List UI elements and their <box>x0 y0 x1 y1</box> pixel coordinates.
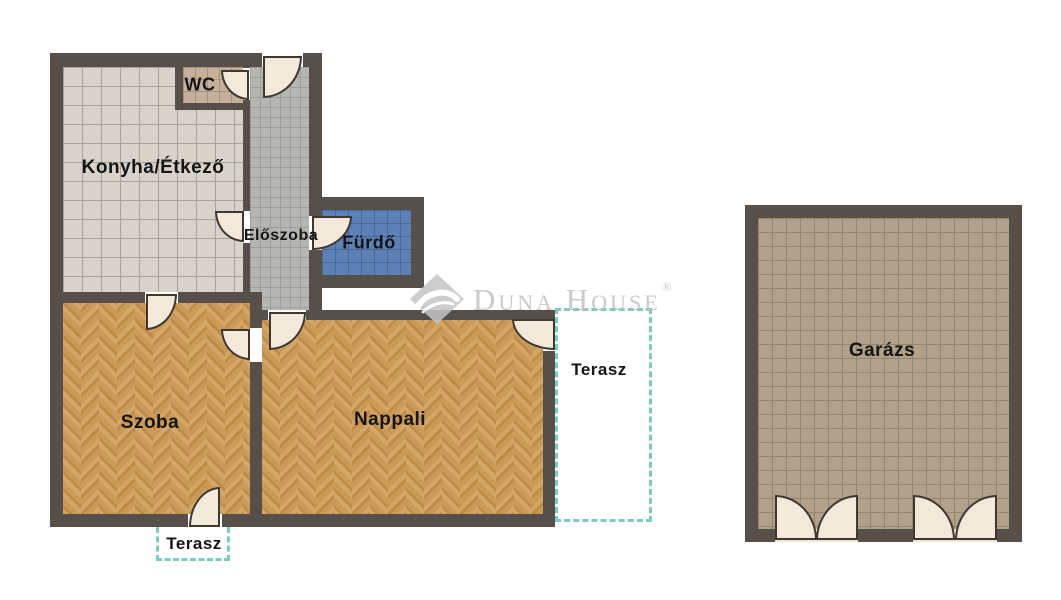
parquet-strip <box>171 303 189 514</box>
parquet-strip <box>334 320 352 514</box>
parquet-strip <box>532 320 543 514</box>
parquet-strip <box>514 320 532 514</box>
registered-mark: ® <box>662 279 672 295</box>
parquet-strip <box>153 303 171 514</box>
floor-plan: Konyha/Étkező WC Előszoba Fürdő Szoba Na… <box>0 0 1061 600</box>
doorway-gap <box>250 328 262 362</box>
bathroom-label: Fürdő <box>342 233 396 254</box>
parquet-strip <box>298 320 316 514</box>
kitchen-label: Konyha/Étkező <box>82 157 225 179</box>
room-label: Szoba <box>121 412 179 434</box>
wall <box>50 53 63 527</box>
terrace-right-label: Terasz <box>571 360 627 380</box>
parquet-strip <box>189 303 207 514</box>
duna-house-watermark: Duna House ® <box>408 272 671 326</box>
parquet-strip <box>442 320 460 514</box>
parquet-strip <box>478 320 496 514</box>
hall-floor <box>250 67 309 310</box>
garage-wall <box>745 205 1022 218</box>
wall <box>50 514 555 527</box>
parquet-strip <box>81 303 99 514</box>
wall <box>309 197 424 210</box>
parquet-strip <box>496 320 514 514</box>
parquet-strip <box>135 303 153 514</box>
garage-label: Garázs <box>849 340 915 362</box>
wall <box>250 292 262 514</box>
parquet-strip <box>99 303 117 514</box>
garage-wall <box>745 205 758 542</box>
garage-wall <box>1009 205 1022 542</box>
garage-floor <box>758 218 1009 529</box>
parquet-strip <box>63 303 81 514</box>
wall <box>175 103 250 110</box>
terrace-bottom-label: Terasz <box>166 534 222 554</box>
hall-label: Előszoba <box>244 227 318 245</box>
parquet-strip <box>460 320 478 514</box>
wc-label: WC <box>185 75 216 96</box>
terrace-right-outline <box>555 308 652 522</box>
duna-house-logo-icon <box>408 272 466 326</box>
watermark-text: Duna House <box>473 284 661 315</box>
parquet-strip <box>424 320 442 514</box>
parquet-strip <box>316 320 334 514</box>
living-room-label: Nappali <box>354 409 426 431</box>
wall <box>175 53 183 110</box>
parquet-strip <box>280 320 298 514</box>
wall <box>309 53 322 216</box>
parquet-strip <box>117 303 135 514</box>
